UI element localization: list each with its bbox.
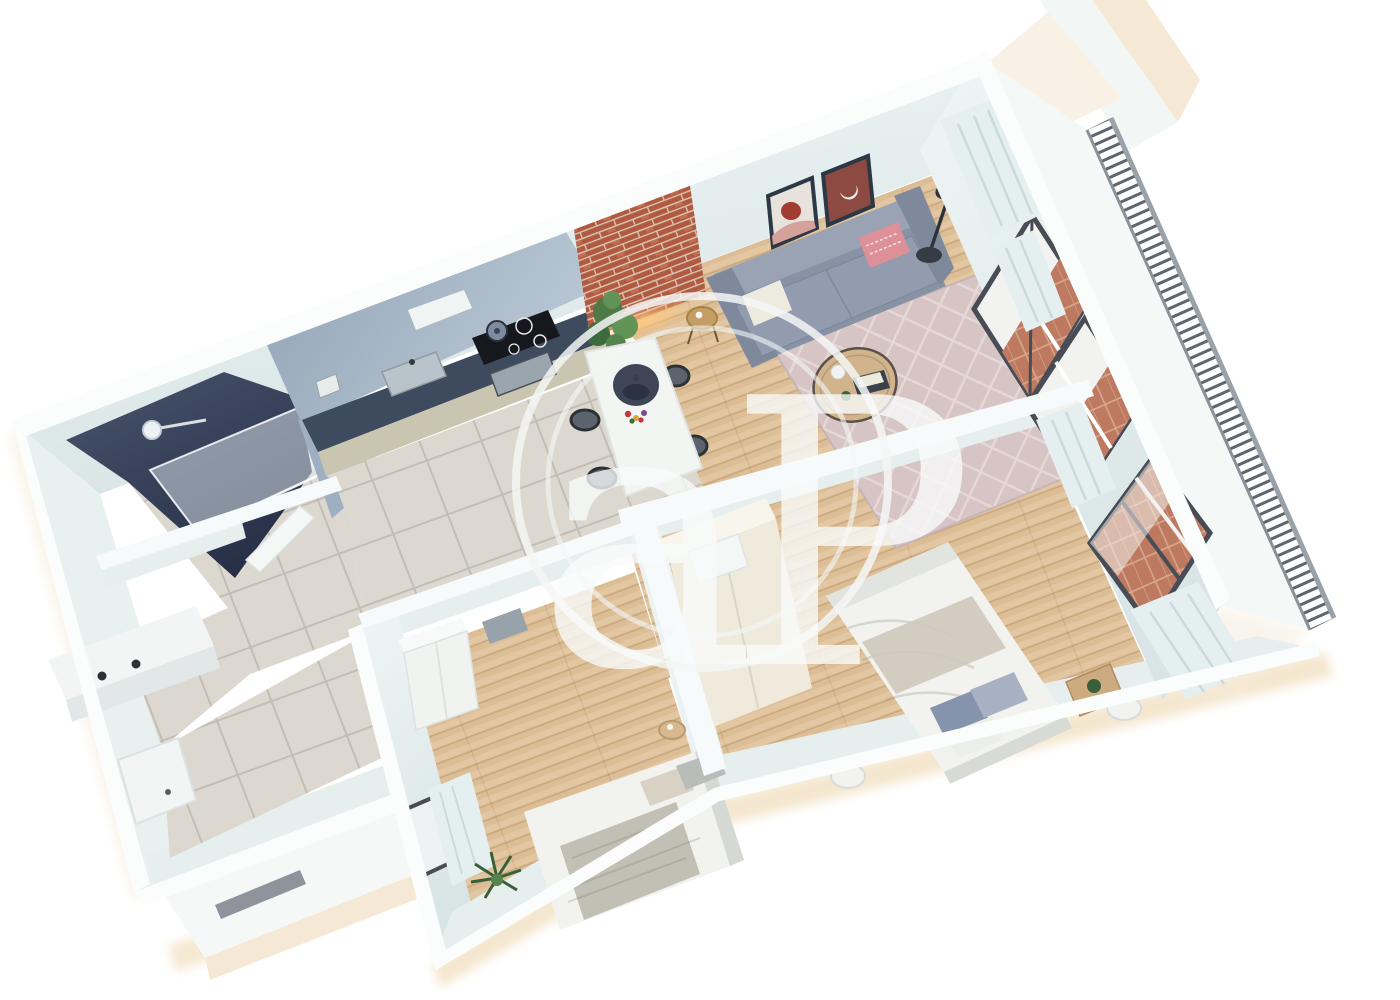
sink-faucet (409, 359, 415, 365)
shower-head (143, 421, 161, 439)
vanity-faucet-right (132, 660, 141, 669)
mug (696, 312, 703, 319)
floorplan-render: aP (0, 0, 1400, 1000)
watermark-text: aP (536, 322, 964, 752)
watermark: aP (516, 296, 964, 752)
vanity-faucet-left (98, 672, 107, 681)
floorplan-svg: aP (0, 0, 1400, 1000)
door-handle (165, 789, 171, 795)
